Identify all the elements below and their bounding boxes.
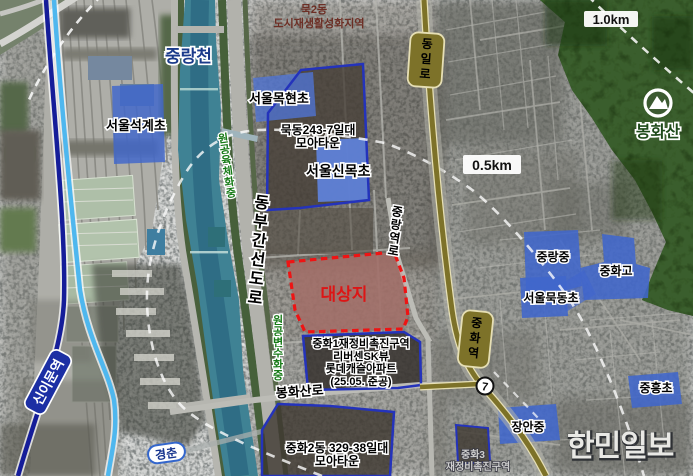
svg-text:모아타운: 모아타운 bbox=[296, 135, 340, 150]
svg-text:봉화산: 봉화산 bbox=[636, 122, 680, 141]
svg-text:한민일보: 한민일보 bbox=[567, 430, 674, 463]
svg-text:재정비촉진구역: 재정비촉진구역 bbox=[446, 460, 510, 473]
svg-text:서울목현초: 서울목현초 bbox=[249, 91, 309, 106]
svg-text:묵동243-7일대: 묵동243-7일대 bbox=[281, 123, 356, 137]
svg-text:중화3: 중화3 bbox=[461, 449, 485, 461]
svg-text:묵2동: 묵2동 bbox=[301, 3, 327, 16]
svg-text:리버센SK뷰: 리버센SK뷰 bbox=[333, 349, 389, 363]
svg-text:서울석계초: 서울석계초 bbox=[106, 118, 166, 133]
svg-text:장안중: 장안중 bbox=[511, 419, 544, 434]
svg-text:중흥초: 중흥초 bbox=[639, 380, 672, 395]
svg-text:0.5km: 0.5km bbox=[472, 157, 512, 173]
svg-text:1.0km: 1.0km bbox=[593, 12, 630, 27]
svg-text:서울신목초: 서울신목초 bbox=[306, 163, 371, 179]
svg-text:원공변수화중: 원공변수화중 bbox=[273, 313, 283, 382]
svg-text:서울묵동초: 서울묵동초 bbox=[523, 290, 578, 305]
svg-text:롯데캐슬아파트: 롯데캐슬아파트 bbox=[326, 361, 397, 375]
svg-text:중랑천: 중랑천 bbox=[165, 47, 212, 66]
svg-text:중화2동 329-38일대: 중화2동 329-38일대 bbox=[286, 440, 389, 455]
svg-text:대상지: 대상지 bbox=[321, 285, 368, 304]
svg-text:경춘: 경춘 bbox=[154, 445, 178, 463]
svg-text:중화1재정비촉진구역: 중화1재정비촉진구역 bbox=[312, 336, 409, 350]
svg-text:중랑중: 중랑중 bbox=[536, 250, 569, 264]
svg-text:중화고: 중화고 bbox=[599, 263, 632, 278]
svg-text:도시재생활성화지역: 도시재생활성화지역 bbox=[273, 16, 364, 30]
svg-text:모아타운: 모아타운 bbox=[315, 453, 359, 468]
svg-text:(25.05. 준공): (25.05. 준공) bbox=[330, 375, 392, 388]
